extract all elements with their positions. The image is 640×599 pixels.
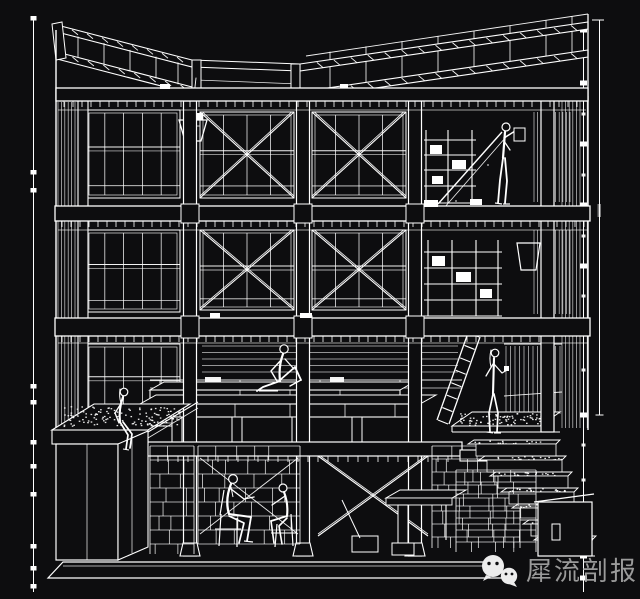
screenshot-root: 犀流剖报 [0, 0, 640, 599]
wechat-icon [479, 553, 521, 589]
middle-floor-bays [86, 230, 570, 316]
figure-seated-right [271, 484, 297, 547]
architectural-section-drawing [0, 0, 640, 599]
wechat-watermark: 犀流剖报 [479, 553, 638, 589]
figures [271, 484, 297, 547]
top-floor-bays [86, 110, 570, 208]
butterfly-roof [52, 14, 588, 338]
section-perspective-canvas [0, 0, 640, 599]
watermark-text: 犀流剖报 [526, 558, 638, 584]
